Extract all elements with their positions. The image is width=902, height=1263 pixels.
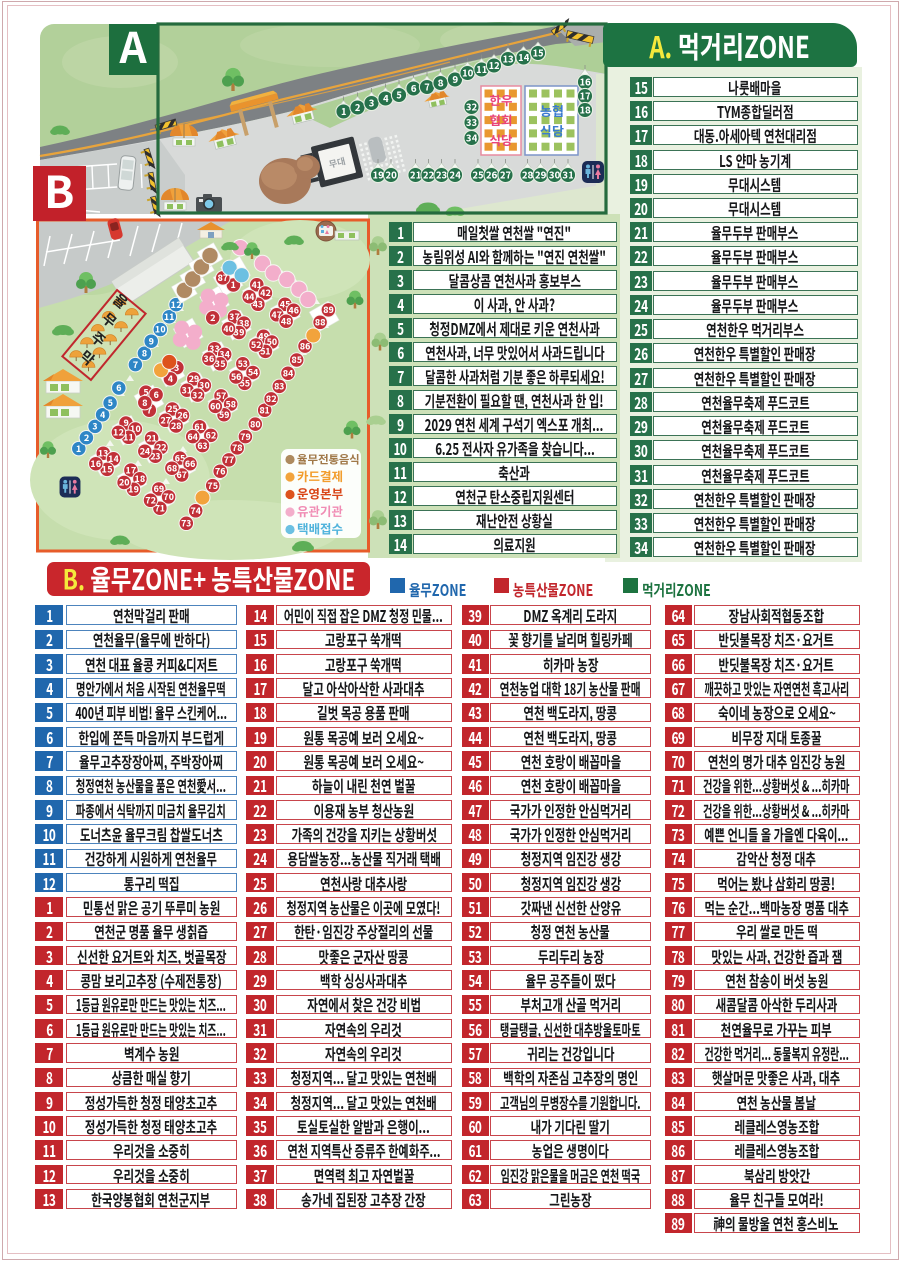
svg-text:카드결제: 카드결제: [297, 466, 343, 485]
svg-text:28: 28: [171, 419, 182, 432]
svg-text:29: 29: [535, 167, 547, 181]
svg-text:88: 88: [315, 316, 326, 329]
svg-text:1: 1: [76, 442, 81, 455]
svg-text:79: 79: [240, 430, 251, 443]
svg-text:2: 2: [355, 100, 361, 114]
svg-text:18: 18: [579, 102, 591, 116]
svg-text:75: 75: [207, 479, 218, 492]
svg-text:24: 24: [139, 445, 150, 458]
svg-text:36: 36: [204, 352, 215, 365]
svg-text:28: 28: [522, 167, 534, 181]
svg-text:11: 11: [476, 62, 487, 76]
svg-text:12: 12: [488, 58, 500, 72]
svg-text:12: 12: [113, 426, 124, 439]
svg-text:식당: 식당: [540, 121, 564, 140]
svg-text:2: 2: [210, 311, 216, 324]
svg-text:68: 68: [167, 461, 178, 474]
svg-text:82: 82: [266, 392, 277, 405]
svg-text:10: 10: [462, 65, 474, 79]
svg-text:한우: 한우: [489, 90, 512, 109]
svg-text:16: 16: [90, 457, 101, 470]
svg-text:56: 56: [231, 370, 242, 383]
svg-text:8: 8: [142, 347, 148, 360]
svg-text:13: 13: [502, 51, 514, 65]
svg-text:9: 9: [452, 72, 458, 86]
svg-text:31: 31: [562, 167, 573, 181]
svg-text:3: 3: [92, 420, 98, 433]
svg-text:1: 1: [231, 278, 236, 291]
svg-text:72: 72: [145, 494, 156, 507]
svg-text:7: 7: [424, 79, 430, 93]
svg-text:48: 48: [281, 314, 292, 327]
svg-text:B: B: [44, 157, 74, 221]
svg-text:21: 21: [410, 167, 421, 181]
svg-text:24: 24: [449, 167, 461, 181]
svg-text:협회: 협회: [489, 110, 512, 129]
svg-text:76: 76: [215, 464, 226, 477]
svg-text:4: 4: [168, 372, 174, 385]
svg-text:26: 26: [486, 167, 498, 181]
svg-text:17: 17: [579, 88, 591, 102]
svg-text:6: 6: [153, 388, 159, 401]
svg-text:60: 60: [210, 400, 221, 413]
svg-text:6: 6: [411, 81, 417, 95]
svg-text:7: 7: [133, 358, 138, 371]
svg-text:20: 20: [385, 167, 397, 181]
svg-text:4: 4: [100, 408, 106, 421]
svg-text:27: 27: [500, 167, 512, 181]
svg-text:16: 16: [579, 74, 591, 88]
svg-text:2: 2: [84, 431, 90, 444]
svg-text:25: 25: [472, 167, 484, 181]
svg-text:8: 8: [142, 396, 148, 409]
svg-text:64: 64: [187, 430, 198, 443]
svg-text:11: 11: [164, 310, 175, 323]
svg-text:A: A: [119, 18, 148, 76]
svg-text:44: 44: [244, 290, 255, 303]
svg-text:20: 20: [119, 476, 130, 489]
svg-text:4: 4: [383, 91, 389, 105]
svg-text:10: 10: [155, 323, 166, 336]
svg-text:5: 5: [107, 396, 113, 409]
svg-text:74: 74: [190, 504, 201, 517]
svg-text:운영본부: 운영본부: [296, 484, 344, 503]
svg-text:77: 77: [224, 453, 235, 466]
svg-text:22: 22: [423, 167, 435, 181]
svg-text:30: 30: [549, 167, 561, 181]
svg-text:농협: 농협: [540, 101, 564, 120]
svg-text:23: 23: [436, 167, 448, 181]
svg-text:32: 32: [466, 99, 478, 113]
svg-text:80: 80: [250, 417, 261, 430]
svg-text:8: 8: [438, 75, 444, 89]
svg-text:14: 14: [518, 50, 530, 64]
svg-text:85: 85: [291, 353, 302, 366]
svg-text:83: 83: [274, 380, 285, 393]
svg-text:52: 52: [251, 338, 262, 351]
svg-text:1: 1: [341, 104, 347, 118]
svg-text:89: 89: [323, 303, 334, 316]
svg-text:19: 19: [372, 167, 384, 181]
svg-text:유관기관: 유관기관: [297, 501, 344, 520]
svg-text:3: 3: [369, 95, 375, 109]
svg-text:84: 84: [283, 366, 294, 379]
svg-text:9: 9: [149, 334, 155, 347]
svg-text:32: 32: [192, 388, 203, 401]
svg-text:15: 15: [532, 45, 544, 59]
svg-text:식당: 식당: [489, 130, 513, 149]
svg-text:택배접수: 택배접수: [297, 519, 344, 538]
svg-text:40: 40: [223, 322, 234, 335]
svg-text:5: 5: [396, 87, 402, 101]
svg-text:6: 6: [116, 381, 122, 394]
svg-text:34: 34: [466, 130, 478, 144]
svg-text:73: 73: [181, 517, 192, 530]
svg-text:33: 33: [466, 115, 478, 129]
